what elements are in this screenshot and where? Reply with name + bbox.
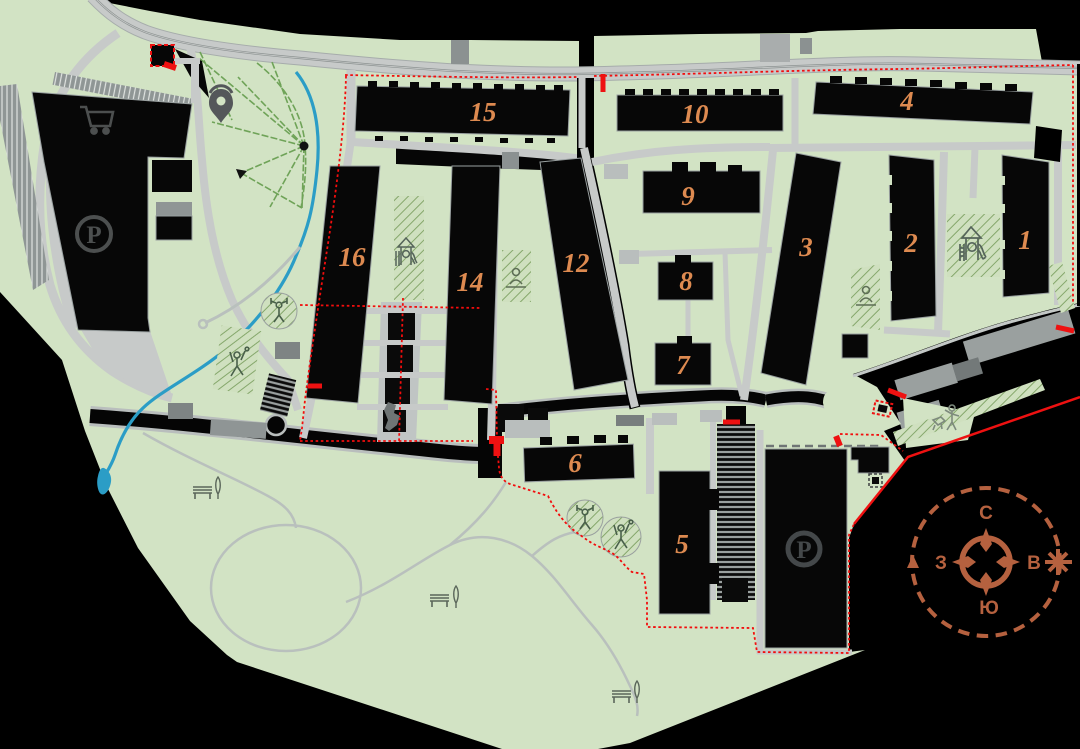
svg-text:9: 9 xyxy=(681,181,695,211)
svg-text:6: 6 xyxy=(568,448,582,478)
svg-text:3: 3 xyxy=(798,232,813,262)
svg-text:7: 7 xyxy=(676,350,691,380)
svg-text:4: 4 xyxy=(899,86,914,116)
svg-text:Ю: Ю xyxy=(979,598,999,619)
svg-text:В: В xyxy=(1027,553,1041,574)
svg-text:10: 10 xyxy=(682,99,710,129)
svg-text:P: P xyxy=(796,537,811,564)
svg-text:12: 12 xyxy=(563,248,590,278)
svg-text:С: С xyxy=(979,503,993,524)
svg-text:З: З xyxy=(935,553,947,574)
svg-text:2: 2 xyxy=(903,228,918,258)
svg-text:8: 8 xyxy=(679,266,693,296)
svg-text:1: 1 xyxy=(1018,225,1032,255)
svg-text:P: P xyxy=(86,222,101,249)
svg-text:15: 15 xyxy=(470,97,497,127)
svg-text:5: 5 xyxy=(675,529,689,559)
svg-text:14: 14 xyxy=(457,267,484,297)
svg-text:16: 16 xyxy=(339,242,367,272)
